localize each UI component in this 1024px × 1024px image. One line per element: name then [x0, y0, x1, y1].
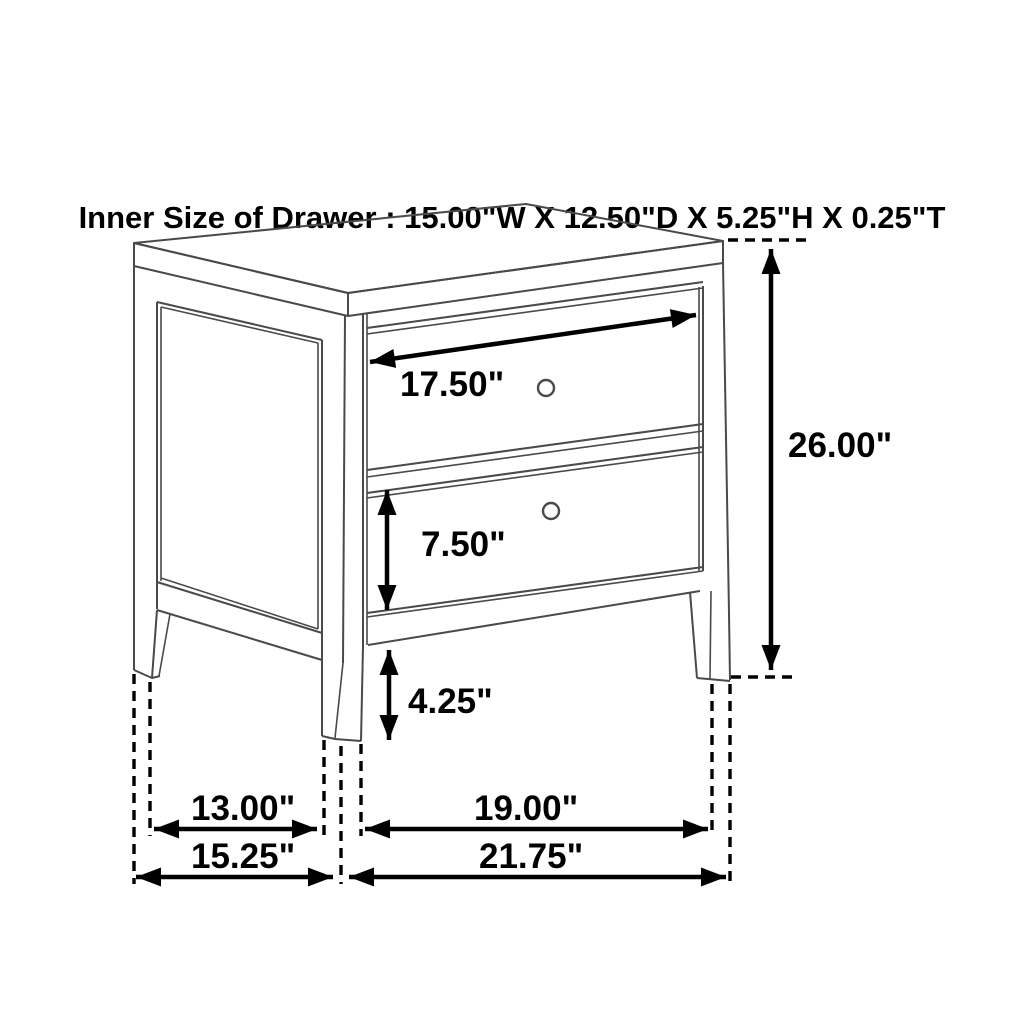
side-leg-span-label: 13.00"	[191, 789, 295, 828]
overall-width-label: 21.75"	[479, 837, 583, 876]
overall-depth-label: 15.25"	[191, 837, 295, 876]
dimension-drawer-front-height: 7.50"	[387, 490, 506, 610]
front-leg-span-label: 19.00"	[474, 789, 578, 828]
overall-height-label: 26.00"	[788, 426, 892, 465]
front-right-leg	[690, 591, 730, 681]
nightstand-drawing	[134, 204, 730, 741]
dimension-overall-height: 26.00"	[771, 249, 892, 670]
drawer-front-height-label: 7.50"	[421, 525, 506, 564]
drawer-1-knob	[538, 380, 554, 396]
dimension-overall-width: 21.75"	[349, 837, 726, 877]
diagram-canvas: Inner Size of Drawer : 15.00"W X 12.50"D…	[0, 0, 1024, 1024]
dimension-drawer-inner-width: 17.50"	[370, 315, 696, 404]
dimension-overall-depth: 15.25"	[136, 837, 333, 877]
rear-left-leg	[134, 610, 170, 678]
drawer-inner-width-label: 17.50"	[400, 365, 504, 404]
drawer-2-knob	[543, 503, 559, 519]
left-side-panel	[134, 266, 322, 670]
dimension-side-leg-span: 13.00"	[154, 789, 317, 829]
dimension-front-leg-span: 19.00"	[365, 789, 708, 829]
furniture-dimension-diagram: Inner Size of Drawer : 15.00"W X 12.50"D…	[0, 0, 1024, 1024]
front-left-stile	[343, 313, 367, 663]
dimension-leg-clearance: 4.25"	[389, 650, 493, 740]
leg-clearance-label: 4.25"	[408, 682, 493, 721]
